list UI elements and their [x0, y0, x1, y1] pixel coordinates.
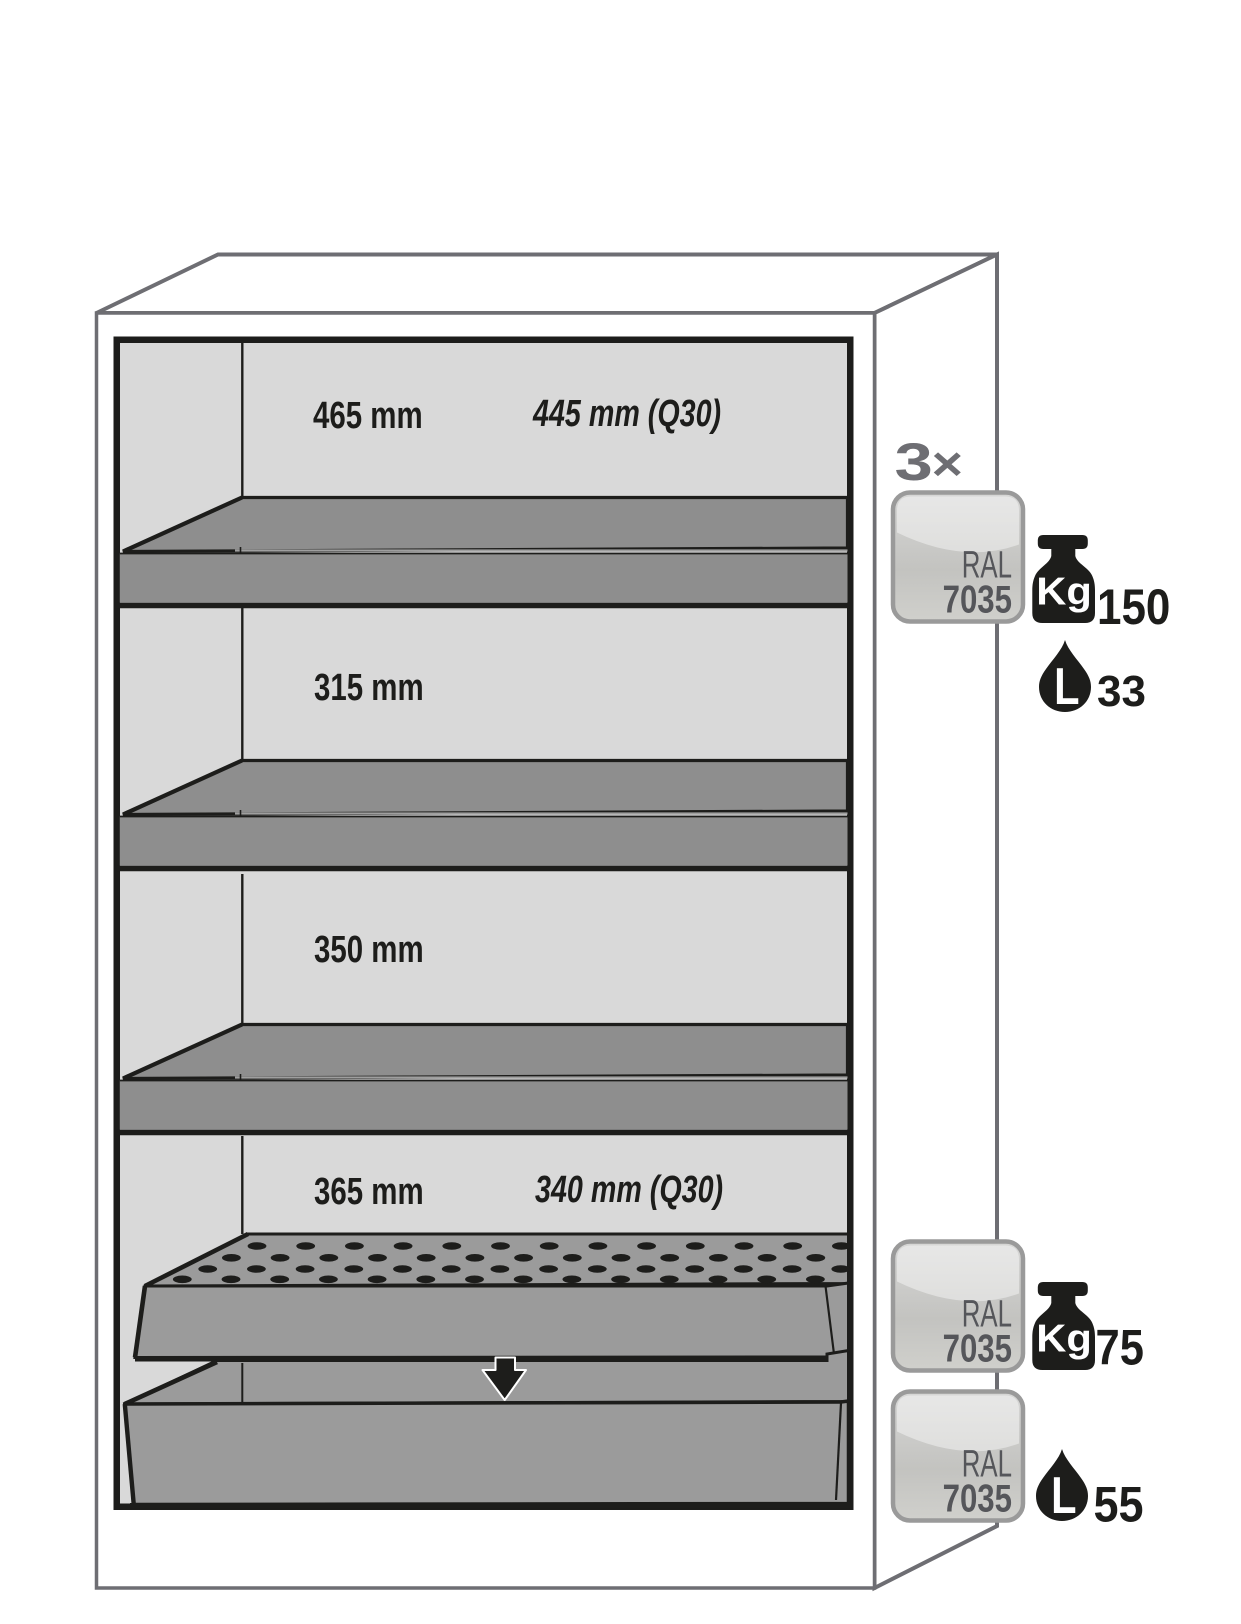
svg-text:365 mm: 365 mm — [314, 1170, 424, 1212]
svg-text:465 mm: 465 mm — [313, 394, 423, 436]
svg-text:Kg: Kg — [1036, 569, 1092, 613]
svg-text:3: 3 — [895, 433, 933, 492]
svg-text:55: 55 — [1094, 1477, 1144, 1533]
svg-text:Kg: Kg — [1036, 1316, 1092, 1360]
svg-text:445 mm (Q30): 445 mm (Q30) — [532, 393, 721, 435]
svg-text:315 mm: 315 mm — [314, 666, 424, 708]
svg-text:340 mm (Q30): 340 mm (Q30) — [535, 1169, 723, 1211]
svg-text:33: 33 — [1097, 667, 1146, 716]
svg-text:×: × — [932, 437, 964, 490]
svg-text:L: L — [1051, 1466, 1076, 1525]
svg-text:L: L — [1054, 657, 1079, 716]
svg-text:7035: 7035 — [943, 578, 1012, 621]
svg-text:7035: 7035 — [943, 1327, 1012, 1370]
svg-text:350 mm: 350 mm — [314, 928, 424, 970]
svg-text:150: 150 — [1097, 578, 1170, 634]
svg-text:75: 75 — [1096, 1320, 1144, 1375]
svg-text:7035: 7035 — [943, 1477, 1012, 1520]
